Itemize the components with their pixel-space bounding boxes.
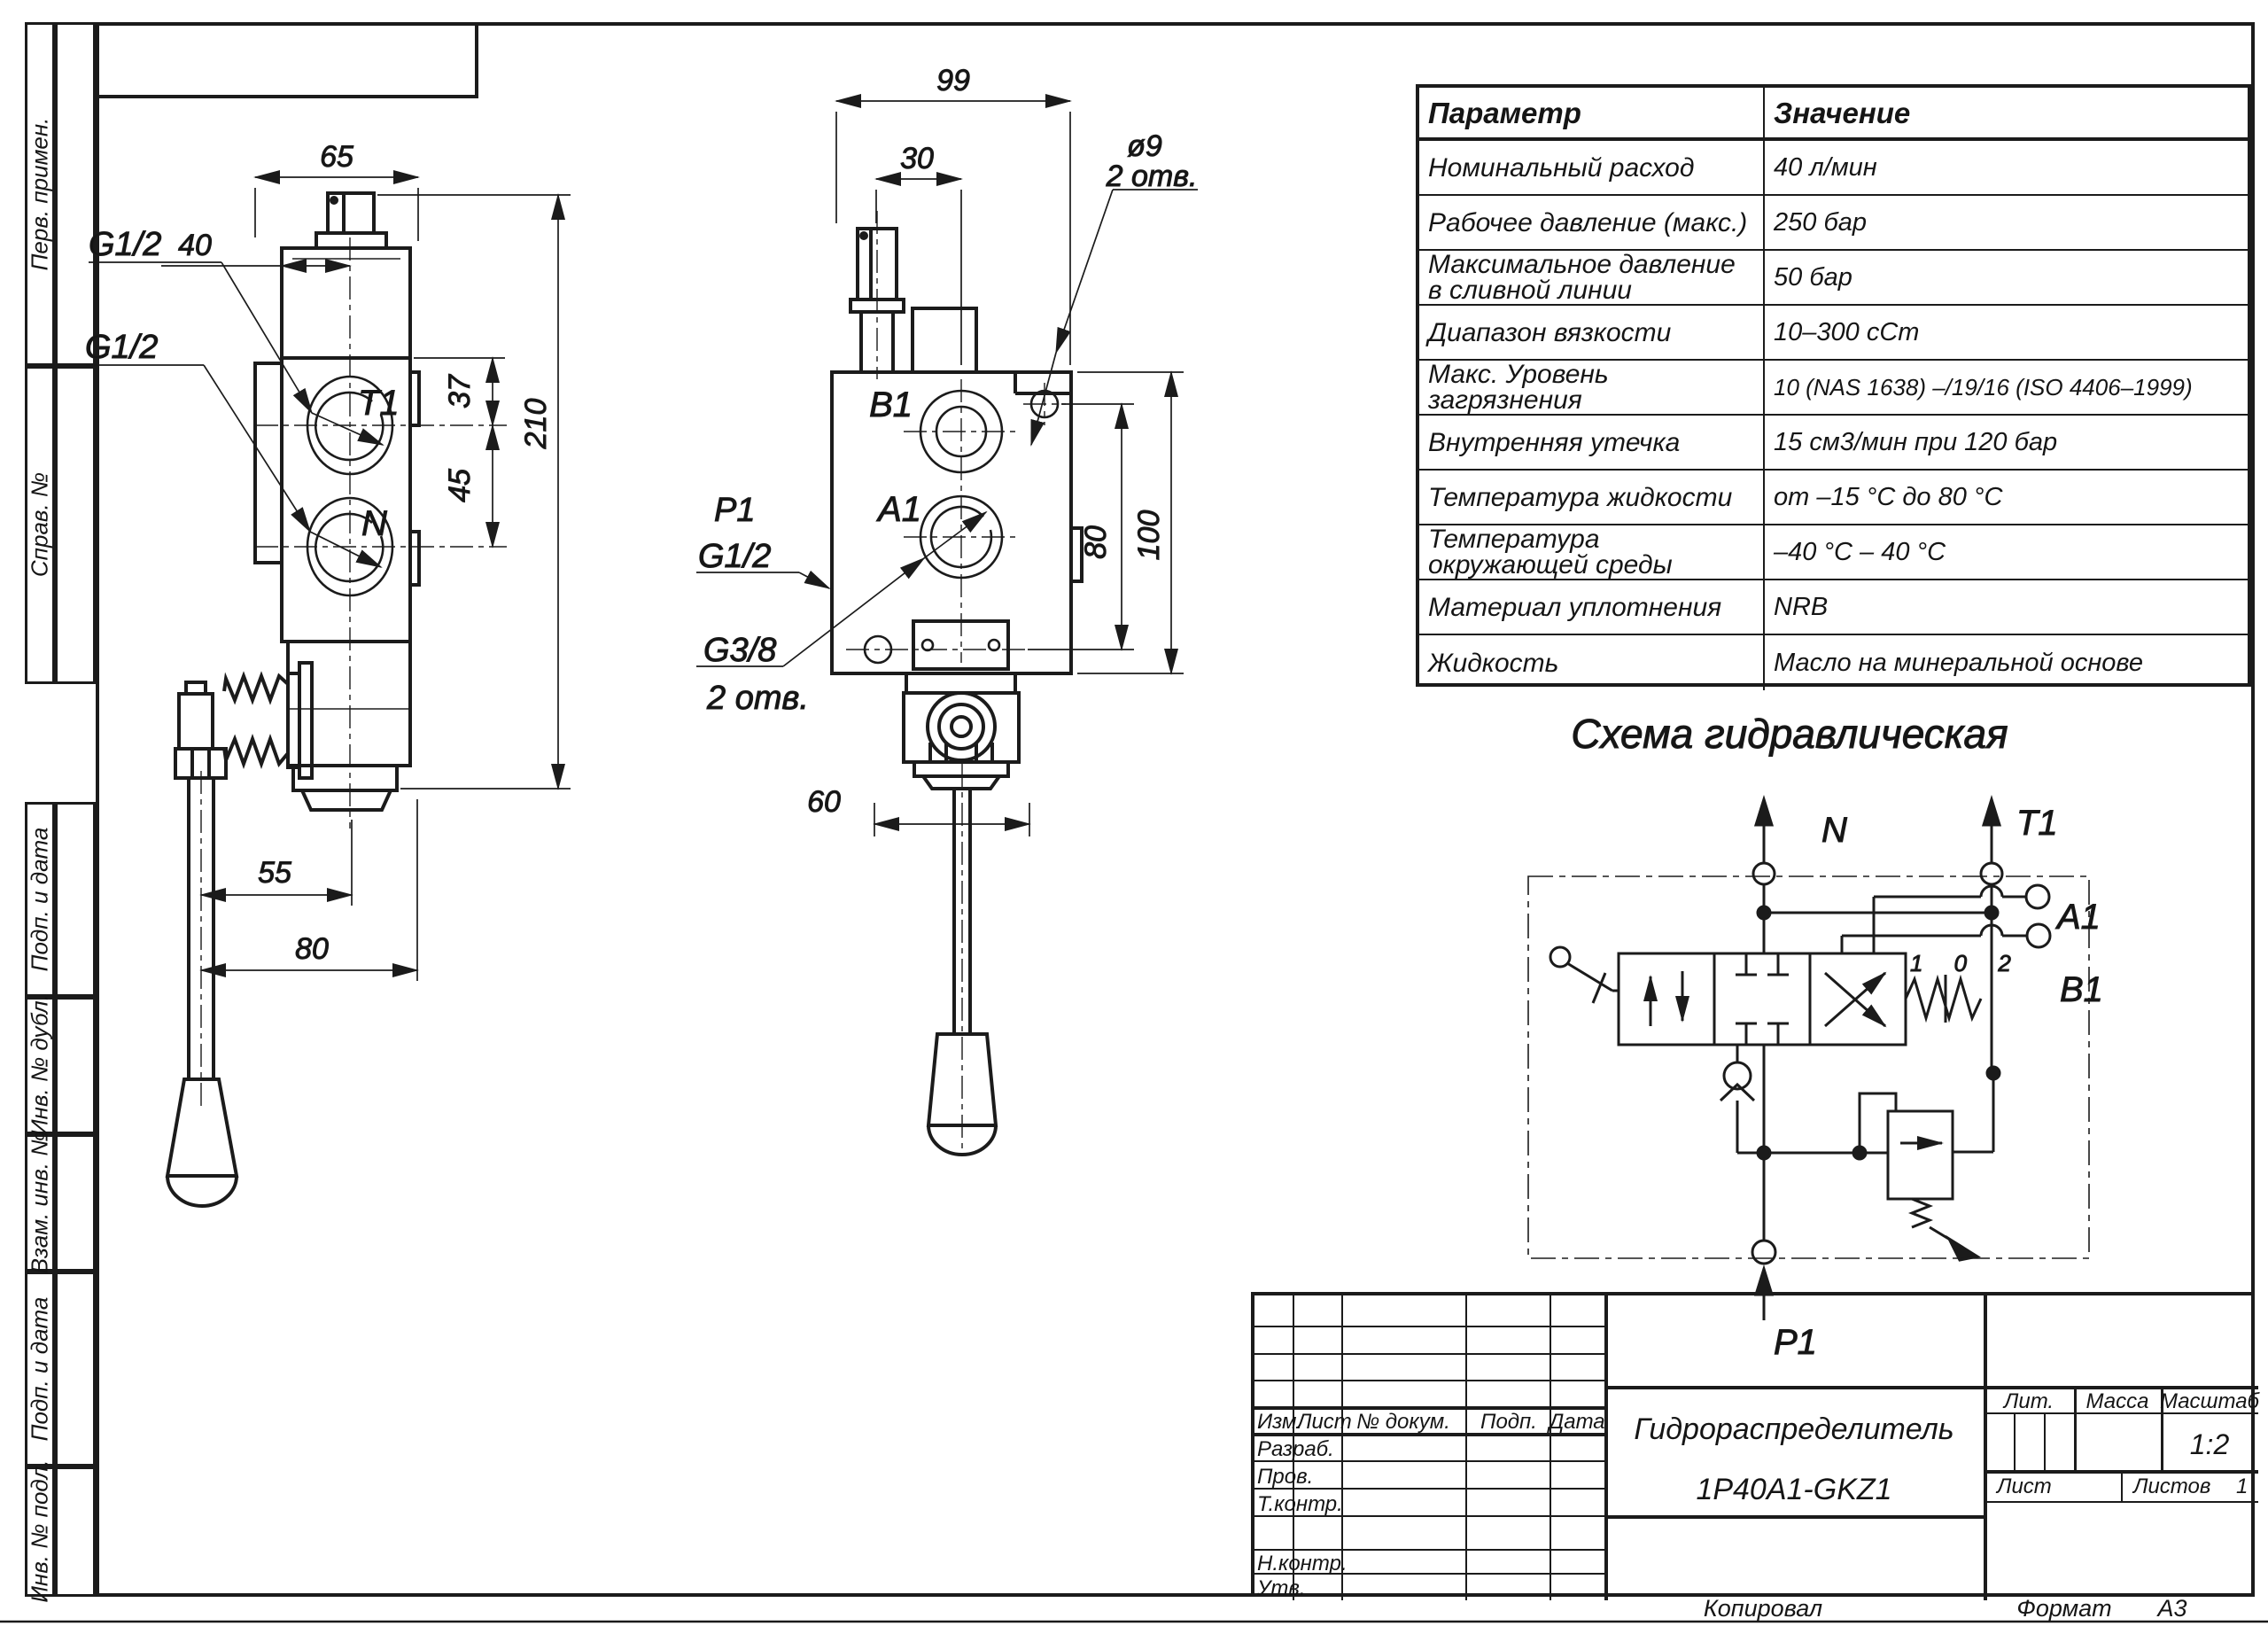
table-row: Макс. Уровень загрязнения 10 (NAS 1638) … bbox=[1419, 361, 2248, 416]
table-row: Температура окружающей среды –40 °С – 40… bbox=[1419, 525, 2248, 580]
param-value: 10–300 сСт bbox=[1765, 306, 2248, 359]
sch-port-t1: T1 bbox=[2016, 804, 2058, 843]
tb-izm: Изм. bbox=[1257, 1410, 1302, 1435]
param-name: Температура окружающей среды bbox=[1419, 525, 1765, 579]
doc-title-line1: Гидрораспределитель bbox=[1634, 1412, 1953, 1447]
tb-scale-value: 1:2 bbox=[2190, 1428, 2229, 1461]
dim-60: 60 bbox=[807, 785, 841, 819]
schematic-boundary bbox=[1528, 876, 2089, 1258]
footer-format-value: А3 bbox=[2157, 1595, 2186, 1622]
param-name: Рабочее давление (макс.) bbox=[1419, 196, 1765, 249]
port-label-n: N bbox=[361, 504, 387, 543]
left-view-dims bbox=[86, 177, 571, 981]
sch-port-b1: B1 bbox=[2060, 970, 2103, 1009]
param-value: NRB bbox=[1765, 580, 2248, 634]
tb-razrab: Разраб. bbox=[1257, 1437, 1334, 1462]
table-row: Рабочее давление (макс.) 250 бар bbox=[1419, 196, 2248, 251]
hydraulic-schematic: Схема гидравлическая bbox=[1528, 711, 2103, 1362]
param-value: 10 (NAS 1638) –/19/16 (ISO 4406–1999) bbox=[1765, 361, 2248, 414]
footer-format-label: Формат bbox=[2016, 1595, 2111, 1622]
left-view-outline bbox=[167, 193, 419, 1206]
table-row: Внутренняя утечка 15 см3/мин при 120 бар bbox=[1419, 416, 2248, 471]
tb-list: Лист bbox=[1297, 1410, 1352, 1435]
param-value: 40 л/мин bbox=[1765, 141, 2248, 194]
sch-port-n: N bbox=[1821, 811, 1847, 850]
dim-80-mid: 80 bbox=[1079, 525, 1113, 559]
dim-80-left: 80 bbox=[295, 932, 329, 966]
dim-dia9: ø9 bbox=[1127, 129, 1162, 163]
port-label-b1: B1 bbox=[869, 385, 913, 424]
param-value: от –15 °С до 80 °С bbox=[1765, 471, 2248, 524]
port-label-t1: T1 bbox=[358, 384, 400, 423]
param-value: –40 °С – 40 °С bbox=[1765, 525, 2248, 579]
param-value: 15 см3/мин при 120 бар bbox=[1765, 416, 2248, 469]
middle-view: 99 30 ø9 2 отв. 80 100 60 B1 A1 P1 G1/2 … bbox=[696, 64, 1198, 1155]
dim-dia9-holes: 2 отв. bbox=[1106, 159, 1198, 193]
dim-100: 100 bbox=[1132, 510, 1166, 561]
schematic-title: Схема гидравлическая bbox=[1571, 711, 2008, 757]
table-row: Жидкость Масло на минеральной основе bbox=[1419, 635, 2248, 690]
tb-n-kontr: Н.контр. bbox=[1257, 1552, 1348, 1576]
param-name: Номинальный расход bbox=[1419, 141, 1765, 194]
table-header-value: Значение bbox=[1765, 88, 2248, 137]
tb-n-dokum: № докум. bbox=[1356, 1410, 1450, 1435]
param-name: Максимальное давление в сливной линии bbox=[1419, 251, 1765, 304]
dim-30: 30 bbox=[900, 142, 934, 175]
param-name: Температура жидкости bbox=[1419, 471, 1765, 524]
tb-sheet-label: Лист bbox=[1997, 1474, 2052, 1499]
tb-masshtab: Масштаб bbox=[2160, 1389, 2259, 1414]
position-labels: 1 0 2 bbox=[1910, 950, 2023, 976]
middle-view-outline bbox=[832, 229, 1082, 1155]
tb-podp: Подп. bbox=[1480, 1410, 1537, 1435]
left-view: 65 40 210 37 45 55 80 G1/2 G1/2 T1 N bbox=[85, 140, 571, 1206]
param-value: 50 бар bbox=[1765, 251, 2248, 304]
dim-37: 37 bbox=[443, 374, 477, 408]
param-name: Жидкость bbox=[1419, 635, 1765, 690]
thread-label-g12-bottom: G1/2 bbox=[85, 329, 158, 366]
thread-label-g38-holes: 2 отв. bbox=[706, 680, 809, 717]
tb-t-kontr: Т.контр. bbox=[1257, 1492, 1343, 1517]
dim-210: 210 bbox=[519, 399, 553, 450]
tb-sheets-value: 1 bbox=[2236, 1474, 2248, 1499]
tb-sheets-label: Листов bbox=[2133, 1474, 2210, 1499]
dim-45: 45 bbox=[443, 469, 477, 502]
drawing-sheet: Перв. примен. Справ. № Подп. и дата Инв.… bbox=[0, 0, 2268, 1626]
tb-prov: Пров. bbox=[1257, 1465, 1313, 1490]
table-row: Номинальный расход 40 л/мин bbox=[1419, 141, 2248, 196]
port-label-a1: A1 bbox=[876, 490, 921, 529]
param-name: Материал уплотнения bbox=[1419, 580, 1765, 634]
tb-lit: Лит. bbox=[2004, 1389, 2054, 1414]
thread-label-g12-top: G1/2 bbox=[89, 226, 161, 263]
table-row: Максимальное давление в сливной линии 50… bbox=[1419, 251, 2248, 306]
table-row: Материал уплотнения NRB bbox=[1419, 580, 2248, 635]
param-value: 250 бар bbox=[1765, 196, 2248, 249]
dim-65: 65 bbox=[320, 140, 353, 174]
footer-kopiroval: Копировал bbox=[1704, 1595, 1822, 1622]
tb-data: Дата bbox=[1549, 1410, 1604, 1435]
table-row: Диапазон вязкости 10–300 сСт bbox=[1419, 306, 2248, 361]
table-header-row: Параметр Значение bbox=[1419, 88, 2248, 141]
table-row: Температура жидкости от –15 °С до 80 °С bbox=[1419, 471, 2248, 525]
tb-utv: Утв. bbox=[1257, 1576, 1306, 1601]
dim-99: 99 bbox=[936, 64, 970, 97]
doc-title-line2: 1P40A1-GKZ1 bbox=[1696, 1473, 1891, 1507]
schematic-wires bbox=[1720, 799, 2050, 1320]
param-name: Внутренняя утечка bbox=[1419, 416, 1765, 469]
port-label-p1: P1 bbox=[714, 492, 755, 529]
thread-label-g12: G1/2 bbox=[698, 538, 771, 575]
thread-label-g38: G3/8 bbox=[703, 632, 776, 669]
title-block: Изм. Лист № докум. Подп. Дата Разраб. Пр… bbox=[1251, 1292, 2255, 1597]
param-name: Макс. Уровень загрязнения bbox=[1419, 361, 1765, 414]
param-name: Диапазон вязкости bbox=[1419, 306, 1765, 359]
dim-55: 55 bbox=[258, 856, 291, 890]
param-value: Масло на минеральной основе bbox=[1765, 635, 2248, 690]
tb-massa: Масса bbox=[2086, 1389, 2149, 1414]
left-view-centerlines bbox=[201, 237, 507, 1108]
table-header-param: Параметр bbox=[1419, 88, 1765, 137]
dim-40: 40 bbox=[178, 229, 212, 262]
parameters-table: Параметр Значение Номинальный расход 40 … bbox=[1416, 84, 2251, 687]
sch-port-a1: A1 bbox=[2055, 898, 2101, 937]
